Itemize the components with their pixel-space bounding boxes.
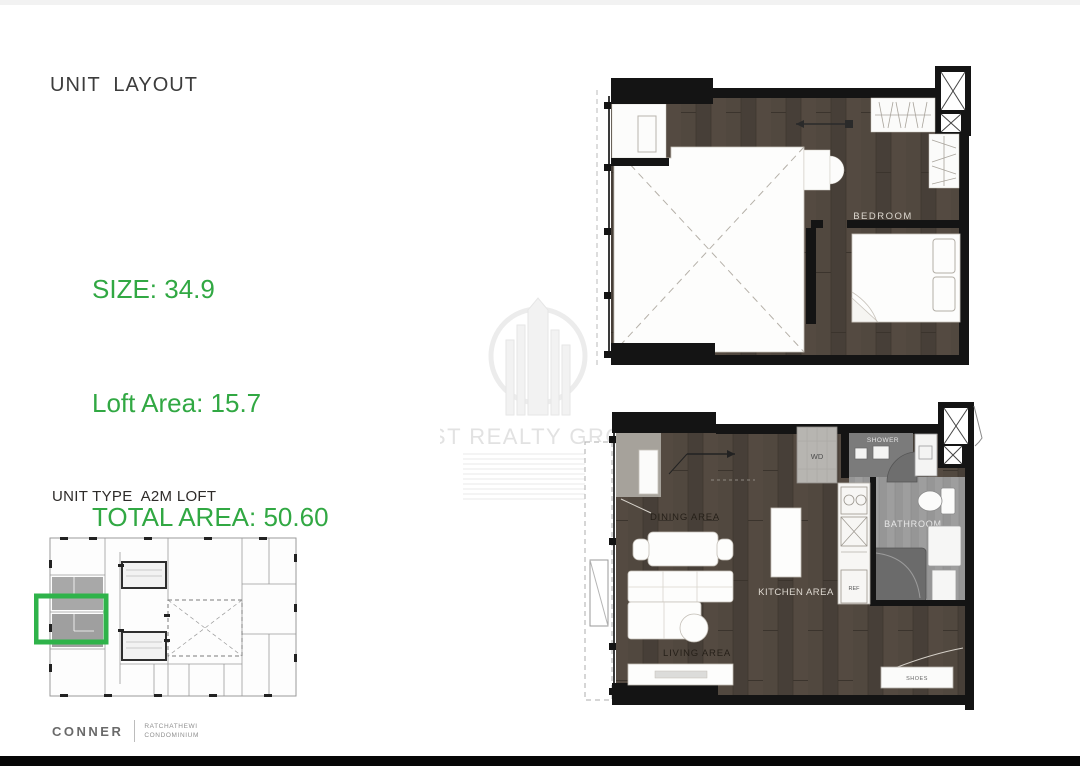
key-plan (34, 524, 304, 709)
entry-door-swing-icon (974, 406, 982, 446)
coffee-table (680, 614, 708, 642)
brand-project-line2: CONDOMINIUM (144, 731, 199, 740)
dining-chair (717, 539, 733, 560)
main-level-plan: DINING AREA LIVING AREA (583, 400, 983, 715)
stat-size: SIZE: 34.9 (92, 270, 329, 308)
brand-name: CONNER (52, 724, 123, 739)
shower-enclosure (871, 548, 926, 602)
pillow (933, 239, 955, 273)
washer-dryer-closet: WD (797, 427, 837, 483)
basin-counter (928, 526, 961, 566)
shower-valve-icon (855, 448, 867, 459)
wall-right (959, 132, 969, 358)
brand-block: CONNER RATCHATHEWI CONDOMINIUM (52, 720, 199, 742)
wall-top-left (612, 412, 716, 433)
kitchen-counter: REF (838, 483, 870, 604)
balcony (585, 442, 612, 700)
wall-top-left (611, 78, 713, 104)
kitchen-island (771, 508, 801, 577)
unit-type-line: UNIT TYPE A2M LOFT (52, 486, 216, 507)
wall-bottom (716, 695, 973, 705)
shoes-cabinet: SHOES (881, 667, 953, 688)
stair-landing (804, 150, 830, 190)
shower-label: SHOWER (867, 437, 899, 444)
washer-label: WD (811, 452, 824, 461)
wall-top (709, 88, 939, 98)
fridge-label: REF (849, 586, 861, 592)
bottom-bar (0, 756, 1080, 766)
watermark-tower (528, 298, 548, 415)
storage-cabinet (639, 450, 658, 494)
tv-console (628, 664, 733, 685)
kitchen-label: KITCHEN AREA (758, 587, 834, 598)
shoes-label: SHOES (906, 676, 928, 682)
dining-table (633, 532, 733, 566)
loft-level-plan: BEDROOM (591, 62, 973, 374)
wall-bottom (709, 355, 969, 365)
vanity (915, 434, 937, 476)
wall-right (965, 466, 974, 710)
bedroom-label: BEDROOM (853, 211, 913, 222)
wall-bottom-left (611, 343, 715, 365)
page-title: UNIT LAYOUT (50, 74, 198, 97)
shower-seat (873, 446, 889, 459)
living-label: LIVING AREA (663, 648, 731, 659)
brand-project-line1: RATCHATHEWI (144, 722, 199, 731)
loft-alcove (612, 104, 666, 158)
top-strip (0, 0, 1080, 5)
pillow (933, 277, 955, 311)
brand-divider (134, 720, 135, 742)
dining-label: DINING AREA (650, 512, 720, 523)
dining-chair (633, 539, 649, 560)
stat-loft-area: Loft Area: 15.7 (92, 384, 329, 422)
wall-bottom-left (612, 683, 718, 705)
brand-project: RATCHATHEWI CONDOMINIUM (144, 722, 199, 740)
unit-layout-slide: JST REALTY GROUP UNIT LAYOUT SIZE: 34.9 … (0, 0, 1080, 766)
bathroom-door-leaf (932, 570, 956, 602)
bed (852, 234, 960, 322)
